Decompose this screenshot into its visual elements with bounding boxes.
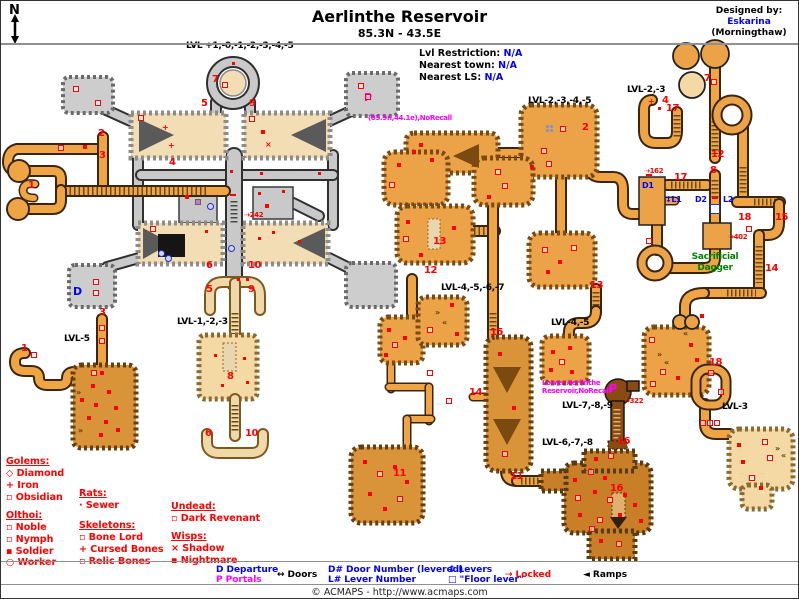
creature-marker-icon: « bbox=[442, 319, 447, 327]
creature-marker-icon bbox=[403, 236, 409, 242]
creature-marker-icon: » bbox=[657, 351, 662, 359]
creature-marker-icon bbox=[749, 475, 755, 481]
map-coordinates: 85.3N - 43.5E bbox=[1, 27, 798, 40]
creature-marker-icon bbox=[205, 230, 208, 233]
door-icon bbox=[230, 194, 236, 196]
creature-marker-icon bbox=[282, 190, 285, 193]
map-connection-number: 1 bbox=[28, 180, 34, 191]
creature-marker-icon bbox=[450, 303, 454, 307]
creature-marker-icon bbox=[397, 163, 401, 167]
creature-legend-item: ▫ Obsidian bbox=[6, 492, 63, 503]
creature-marker-icon bbox=[737, 443, 741, 447]
map-connection-number: 15 bbox=[490, 327, 503, 338]
creature-marker-icon bbox=[419, 143, 423, 147]
map-connection-number: 8 bbox=[710, 165, 716, 176]
map-label: Reservoir,NoRecall bbox=[542, 387, 610, 395]
legend-bar-item: DDeparture bbox=[216, 565, 278, 575]
levers-icon: ↕ bbox=[448, 565, 456, 575]
creature-marker-icon bbox=[246, 278, 249, 281]
legend-bar-item: ⇢Locked bbox=[505, 570, 551, 580]
map-connection-number: 6 bbox=[206, 260, 212, 271]
acmaps-dungeon-map-page: LVL +1,-0,-1,-2,-3,-4,-5LVL-2,-3,-4,-5LV… bbox=[0, 0, 799, 599]
map-connection-number: 5 bbox=[206, 284, 212, 295]
creature-marker-icon bbox=[559, 359, 565, 365]
legend-divider-bottom bbox=[1, 584, 799, 585]
map-connection-number: 13 bbox=[433, 236, 446, 247]
designer-world: (Morningthaw) bbox=[704, 28, 794, 38]
creature-marker-icon bbox=[498, 352, 502, 356]
creature-marker-icon bbox=[455, 332, 459, 336]
creature-marker-icon bbox=[623, 493, 627, 497]
creature-marker-icon bbox=[767, 455, 773, 461]
map-connection-number: 1 bbox=[21, 343, 27, 354]
creature-marker-icon: » bbox=[435, 309, 440, 317]
creature-marker-icon bbox=[104, 420, 108, 424]
designed-by-label: Designed by: bbox=[704, 6, 794, 16]
creature-marker-icon bbox=[150, 226, 156, 232]
map-connection-number: 12 bbox=[424, 265, 437, 276]
map-label: D1 bbox=[642, 181, 654, 190]
creature-marker-icon bbox=[708, 370, 714, 376]
map-connection-number: 9 bbox=[248, 284, 254, 295]
creature-marker-icon bbox=[383, 507, 387, 511]
map-label: LVL-7,-8,-9 bbox=[562, 401, 613, 411]
page-title: Aerlinthe Reservoir bbox=[1, 7, 798, 26]
creature-marker-icon: « bbox=[781, 452, 786, 460]
legend-bar-item: ↔Doors bbox=[277, 570, 317, 580]
floor-lever-icon bbox=[710, 204, 720, 214]
creature-marker-icon bbox=[541, 148, 547, 154]
creature-marker-icon bbox=[260, 172, 263, 175]
creature-marker-icon bbox=[741, 460, 745, 464]
map-connection-number: 18 bbox=[738, 212, 751, 223]
creature-marker-icon bbox=[387, 328, 391, 332]
creature-legend-item: ○ Worker bbox=[6, 557, 56, 568]
creature-marker-icon bbox=[265, 204, 269, 208]
creature-marker-icon bbox=[633, 503, 637, 507]
creature-marker-icon bbox=[222, 82, 228, 88]
creature-marker-icon bbox=[427, 370, 433, 376]
creature-marker-icon bbox=[718, 389, 724, 395]
creature-marker-icon: + bbox=[648, 98, 655, 106]
creature-marker-icon bbox=[138, 115, 144, 121]
map-connection-number: 17 bbox=[666, 103, 679, 114]
creature-marker-icon bbox=[31, 352, 37, 358]
map-connection-number: 10 bbox=[245, 428, 258, 439]
creature-marker-icon bbox=[512, 406, 516, 410]
legend-bar-label: Ramps bbox=[593, 570, 627, 580]
creature-marker-icon bbox=[714, 420, 720, 426]
info-row: Nearest LS: N/A bbox=[419, 72, 522, 84]
creature-marker-icon bbox=[430, 158, 434, 162]
creature-marker-icon bbox=[578, 513, 582, 517]
designer-name[interactable]: Eskarina bbox=[704, 17, 794, 27]
map-connection-number: 14 bbox=[469, 387, 482, 398]
creature-marker-icon bbox=[570, 370, 574, 374]
map-label: ⇢402 bbox=[728, 233, 747, 241]
creature-marker-icon bbox=[261, 130, 265, 134]
creature-marker-icon bbox=[530, 165, 534, 169]
map-label: LVL-5 bbox=[64, 334, 90, 344]
door-icon bbox=[646, 174, 652, 176]
creature-marker-icon bbox=[759, 486, 763, 490]
creature-marker-icon bbox=[243, 357, 246, 360]
map-connection-number: 2 bbox=[582, 122, 588, 133]
map-label: ⇢242 bbox=[244, 211, 263, 219]
creature-marker-icon bbox=[272, 231, 275, 234]
creature-marker-icon bbox=[230, 170, 233, 173]
creature-marker-icon bbox=[392, 342, 398, 348]
header-divider bbox=[1, 43, 799, 45]
lever-icon bbox=[228, 245, 235, 252]
legend-bar-label: Door Number (levered) bbox=[346, 565, 463, 575]
creature-marker-icon bbox=[502, 183, 508, 189]
map-connection-number: 7 bbox=[704, 73, 710, 84]
creature-legend-item: ▫ Noble bbox=[6, 522, 47, 533]
creature-marker-icon bbox=[658, 107, 661, 110]
map-label: (85.9n,44.1e),NoRecall bbox=[368, 114, 452, 122]
map-label: LVL-1,-2,-3 bbox=[177, 317, 228, 327]
creature-marker-icon bbox=[93, 290, 99, 296]
map-connection-number: 18 bbox=[709, 357, 722, 368]
creature-marker-icon bbox=[246, 381, 249, 384]
lever-icon bbox=[158, 250, 165, 257]
creature-marker-icon bbox=[646, 238, 652, 244]
creature-marker-icon bbox=[427, 327, 433, 333]
creature-marker-icon bbox=[551, 350, 555, 354]
creature-marker-icon: » bbox=[76, 389, 81, 397]
map-label: L2 bbox=[723, 195, 733, 204]
info-value: N/A bbox=[484, 72, 503, 83]
map-label: LVL-3 bbox=[722, 402, 748, 412]
map-connection-number: 16 bbox=[610, 483, 623, 494]
legend-bar-item: ◄Ramps bbox=[583, 570, 627, 580]
creature-legend-item: + Iron bbox=[6, 480, 39, 491]
creature-marker-icon bbox=[403, 336, 407, 340]
creature-group-title: Golems: bbox=[6, 456, 49, 467]
legend-bar-item: D#Door Number (levered) bbox=[328, 565, 463, 575]
creature-marker-icon bbox=[114, 406, 118, 410]
creature-marker-icon bbox=[87, 416, 91, 420]
info-row: Lvl Restriction: N/A bbox=[419, 48, 522, 60]
map-connection-number: 5 bbox=[201, 98, 207, 109]
creature-marker-icon bbox=[249, 116, 255, 122]
creature-marker-icon bbox=[100, 371, 104, 375]
map-connection-number: 12 bbox=[711, 149, 724, 160]
creature-marker-icon bbox=[616, 541, 622, 547]
lever-icon bbox=[207, 203, 214, 210]
map-connection-number: 14 bbox=[765, 263, 778, 274]
creature-marker-icon: + bbox=[162, 124, 169, 132]
creature-marker-icon bbox=[650, 381, 656, 387]
creature-marker-icon bbox=[549, 368, 553, 372]
map-connection-number: 3 bbox=[99, 307, 105, 318]
creature-marker-icon bbox=[594, 457, 598, 461]
map-label: LVL-6,-7,-8 bbox=[542, 438, 593, 448]
creature-marker-icon bbox=[365, 94, 371, 100]
map-label: ⇢322 bbox=[624, 397, 643, 405]
creature-marker-icon bbox=[80, 398, 84, 402]
map-label: LVL-4,-5,-6,-7 bbox=[441, 283, 504, 293]
creature-marker-icon bbox=[195, 199, 201, 205]
map-connection-number: 4 bbox=[169, 157, 175, 168]
map-connection-number: 7 bbox=[212, 74, 218, 85]
creature-group-title: Skeletons: bbox=[79, 520, 135, 531]
creature-marker-icon bbox=[185, 195, 189, 199]
map-label: Sacrificial bbox=[692, 252, 739, 262]
info-label: Nearest town: bbox=[419, 60, 498, 71]
map-label: D2 bbox=[695, 195, 707, 204]
creature-marker-icon bbox=[546, 161, 552, 167]
info-value: N/A bbox=[498, 60, 517, 71]
map-overlay: LVL +1,-0,-1,-2,-3,-4,-5LVL-2,-3,-4,-5LV… bbox=[1, 1, 799, 599]
creature-marker-icon bbox=[676, 376, 680, 380]
info-value: N/A bbox=[504, 48, 523, 59]
creature-marker-icon bbox=[221, 384, 224, 387]
creature-marker-icon: » bbox=[78, 427, 83, 435]
map-connection-number: 11 bbox=[393, 468, 406, 479]
info-row: Nearest town: N/A bbox=[419, 60, 522, 72]
creature-marker-icon bbox=[384, 353, 388, 357]
creature-marker-icon bbox=[237, 278, 240, 281]
creature-marker-icon bbox=[393, 465, 397, 469]
creature-legend-item: ▫ Bone Lord bbox=[79, 532, 143, 543]
creature-marker-icon bbox=[94, 403, 98, 407]
creature-marker-icon bbox=[639, 519, 643, 523]
map-connection-number: 6 bbox=[205, 428, 211, 439]
creature-legend-item: ▫ Dark Revenant bbox=[171, 513, 260, 524]
creature-marker-icon bbox=[93, 279, 99, 285]
creature-group-title: Wisps: bbox=[171, 531, 207, 542]
creature-marker-icon bbox=[419, 253, 423, 257]
creature-marker-icon: « bbox=[683, 330, 688, 338]
creature-group-title: Undead: bbox=[171, 501, 216, 512]
creature-marker-icon bbox=[318, 172, 321, 175]
creature-marker-icon bbox=[412, 150, 416, 154]
creature-marker-icon bbox=[707, 420, 713, 426]
map-connection-number: 17 bbox=[674, 172, 687, 183]
acmaps-footer: © ACMAPS - http://www.acmaps.com bbox=[1, 587, 798, 598]
creature-marker-icon bbox=[83, 145, 87, 149]
creature-marker-icon bbox=[546, 270, 550, 274]
creature-marker-icon bbox=[99, 325, 105, 331]
map-connection-number: 11 bbox=[510, 471, 523, 482]
map-label: LVL-2,-3 bbox=[627, 85, 665, 95]
door-icon bbox=[712, 197, 718, 199]
creature-legend-item: ▪ Soldier bbox=[6, 546, 54, 557]
creature-marker-icon bbox=[608, 453, 614, 459]
creature-marker-icon: × bbox=[265, 141, 272, 149]
creature-marker-icon bbox=[73, 86, 79, 92]
map-connection-number: 2 bbox=[98, 128, 104, 139]
creature-marker-icon bbox=[603, 476, 607, 480]
creature-marker-icon bbox=[573, 478, 577, 482]
creature-marker-icon bbox=[568, 346, 572, 350]
creature-marker-icon bbox=[377, 471, 383, 477]
map-label: ↕L1 bbox=[665, 195, 681, 204]
creature-marker-icon bbox=[258, 192, 261, 195]
doors-icon: ↔ bbox=[277, 570, 285, 580]
creature-marker-icon bbox=[700, 314, 704, 318]
legend-bar-label: Departure bbox=[226, 565, 278, 575]
creature-group-title: Rats: bbox=[79, 488, 107, 499]
info-label: Nearest LS: bbox=[419, 72, 484, 83]
map-label: LVL-2,-3,-4,-5 bbox=[528, 96, 591, 106]
creature-marker-icon bbox=[502, 451, 508, 457]
map-label: Dagger bbox=[697, 263, 732, 273]
creature-marker-icon bbox=[91, 384, 95, 388]
creature-marker-icon: » bbox=[775, 445, 780, 453]
creature-marker-icon bbox=[597, 517, 603, 523]
creature-marker-icon bbox=[363, 460, 367, 464]
creature-marker-icon bbox=[558, 260, 562, 264]
creature-marker-icon bbox=[358, 83, 364, 89]
creature-marker-icon bbox=[762, 439, 768, 445]
creature-marker-icon bbox=[446, 398, 452, 404]
legend-bar-label: Doors bbox=[288, 570, 318, 580]
creature-legend-item: · Sewer bbox=[79, 500, 119, 511]
creature-marker-icon bbox=[700, 420, 706, 426]
creature-marker-icon bbox=[116, 428, 120, 432]
creature-marker-icon bbox=[58, 145, 64, 151]
creature-marker-icon bbox=[593, 490, 597, 494]
creature-marker-icon bbox=[406, 220, 410, 224]
creature-marker-icon bbox=[487, 195, 491, 199]
map-connection-number: 10 bbox=[248, 260, 261, 271]
creature-marker-icon: « bbox=[664, 359, 669, 367]
map-connection-number: 3 bbox=[99, 150, 105, 161]
map-connection-number: 15 bbox=[775, 212, 788, 223]
creature-marker-icon bbox=[618, 513, 622, 517]
creature-marker-icon bbox=[660, 369, 666, 375]
creature-marker-icon bbox=[107, 390, 111, 394]
creature-marker-icon bbox=[589, 526, 595, 532]
creature-marker-icon bbox=[599, 539, 603, 543]
creature-legend-item: ◇ Diamond bbox=[6, 468, 64, 479]
legend-bar-label: Locked bbox=[516, 570, 552, 580]
creature-marker-icon bbox=[695, 358, 699, 362]
creature-legend-item: + Cursed Bones bbox=[79, 544, 164, 555]
ramps-icon: ◄ bbox=[583, 570, 590, 580]
map-label: LVL-4,-5 bbox=[551, 318, 589, 328]
creature-marker-icon bbox=[99, 433, 103, 437]
legend-divider-top bbox=[1, 561, 799, 562]
map-connection-number: 13 bbox=[590, 280, 603, 291]
lever-icon bbox=[165, 255, 172, 262]
creature-marker-icon bbox=[232, 62, 235, 65]
creature-marker-icon bbox=[575, 495, 581, 501]
map-connection-number: 8 bbox=[227, 371, 233, 382]
map-connection-number: 16 bbox=[617, 436, 630, 447]
creature-marker-icon bbox=[389, 182, 395, 188]
creature-legend-item: × Shadow bbox=[171, 543, 224, 554]
legend-bar-item: ↕Levers bbox=[448, 565, 492, 575]
creature-marker-icon bbox=[546, 125, 549, 128]
creature-marker-icon bbox=[397, 496, 403, 502]
creature-marker-icon bbox=[214, 354, 217, 357]
creature-marker-icon bbox=[689, 343, 693, 347]
creature-marker-icon bbox=[258, 237, 261, 240]
creature-marker-icon bbox=[91, 370, 97, 376]
creature-marker-icon bbox=[607, 497, 613, 503]
creature-marker-icon bbox=[452, 226, 456, 230]
creature-marker-icon bbox=[368, 492, 372, 496]
creature-marker-icon bbox=[711, 79, 717, 85]
creature-group-title: Olthoi: bbox=[6, 510, 42, 521]
creature-marker-icon bbox=[99, 338, 105, 344]
creature-marker-icon bbox=[495, 169, 501, 175]
map-connection-number: 9 bbox=[249, 98, 255, 109]
creature-marker-icon bbox=[298, 240, 301, 243]
map-label: P bbox=[609, 382, 617, 395]
creature-marker-icon bbox=[560, 126, 566, 132]
locked-icon: ⇢ bbox=[505, 570, 513, 580]
creature-marker-icon bbox=[571, 245, 577, 251]
map-label: Lower Aerlinthe bbox=[542, 379, 600, 387]
creature-marker-icon bbox=[588, 469, 594, 475]
dungeon-info-panel: Lvl Restriction: N/ANearest town: N/ANea… bbox=[419, 48, 522, 84]
creature-marker-icon bbox=[95, 100, 101, 106]
creature-legend-item: ▫ Nymph bbox=[6, 534, 53, 545]
creature-marker-icon: + bbox=[168, 142, 175, 150]
door-number-levered-icon: D# bbox=[328, 565, 343, 575]
creature-marker-icon bbox=[746, 226, 752, 232]
info-label: Lvl Restriction: bbox=[419, 48, 504, 59]
creature-marker-icon bbox=[649, 337, 655, 343]
departure-icon: D bbox=[216, 565, 223, 575]
legend-bar-label: Levers bbox=[459, 565, 493, 575]
creature-marker-icon bbox=[542, 247, 548, 253]
map-label: D bbox=[73, 285, 82, 298]
creature-marker-icon bbox=[405, 480, 409, 484]
